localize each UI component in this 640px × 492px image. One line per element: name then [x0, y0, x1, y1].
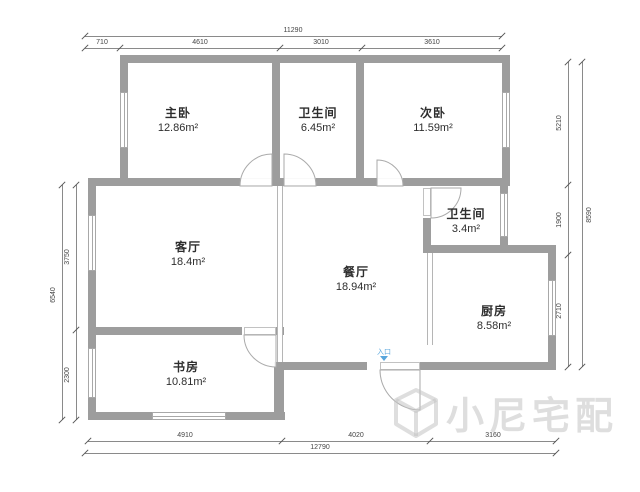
room-area: 10.81m² [166, 376, 206, 388]
dim-top-seg: 4610 [192, 39, 208, 47]
dim-right-total: 8590 [586, 207, 594, 223]
room-name: 厨房 [477, 302, 511, 319]
dim-right-seg: 1900 [556, 212, 564, 228]
room-label-dining-room: 餐厅 18.94m² [336, 263, 376, 293]
room-area: 12.86m² [158, 122, 198, 134]
dimension-line [88, 441, 556, 442]
dimension-line [85, 453, 556, 454]
room-name: 卫生间 [446, 205, 485, 222]
dim-bottom-seg: 4020 [348, 432, 364, 440]
dimension-line [568, 62, 569, 367]
room-label-bathroom-1: 卫生间 6.45m² [298, 104, 337, 134]
room-name: 书房 [166, 358, 206, 375]
room-area: 6.45m² [298, 122, 337, 134]
room-label-bathroom-2: 卫生间 3.4m² [446, 205, 485, 235]
room-area: 18.94m² [336, 281, 376, 293]
room-area: 8.58m² [477, 320, 511, 332]
room-label-second-bedroom: 次卧 11.59m² [413, 104, 453, 134]
room-area: 3.4m² [446, 223, 485, 235]
door-arc-entrance [380, 370, 420, 410]
room-area: 11.59m² [413, 122, 453, 134]
dim-left-seg: 3750 [64, 249, 72, 265]
dim-left-total: 6540 [50, 287, 58, 303]
room-name: 餐厅 [336, 263, 376, 280]
dim-top-total: 11290 [284, 27, 303, 35]
floor-plan: 主卧 12.86m² 卫生间 6.45m² 次卧 11.59m² 客厅 18.4… [0, 0, 640, 492]
dim-left-seg: 2300 [64, 367, 72, 383]
dim-top-seg: 3610 [424, 39, 440, 47]
door-arc-study [244, 335, 276, 367]
door-arc-bathroom-1 [284, 154, 316, 186]
room-name: 卫生间 [298, 104, 337, 121]
door-arcs [0, 0, 640, 492]
dimension-line [85, 36, 502, 37]
room-label-kitchen: 厨房 8.58m² [477, 302, 511, 332]
dim-bottom-seg: 4910 [177, 432, 193, 440]
room-name: 主卧 [158, 104, 198, 121]
room-area: 18.4m² [171, 256, 205, 268]
dim-top-seg: 3010 [313, 39, 329, 47]
entrance-arrow-icon [380, 356, 388, 361]
room-label-study: 书房 10.81m² [166, 358, 206, 388]
dimension-line [62, 185, 63, 420]
door-arc-master-bedroom [240, 154, 272, 186]
dim-right-seg: 5210 [556, 115, 564, 131]
dimension-line [582, 62, 583, 367]
dim-bottom-seg: 3160 [485, 432, 501, 440]
room-label-master-bedroom: 主卧 12.86m² [158, 104, 198, 134]
room-name: 次卧 [413, 104, 453, 121]
room-label-living-room: 客厅 18.4m² [171, 238, 205, 268]
dimension-line [85, 48, 502, 49]
dim-bottom-total: 12790 [310, 444, 329, 452]
door-arc-second-bedroom [377, 160, 403, 186]
dimension-line [76, 185, 77, 420]
room-name: 客厅 [171, 238, 205, 255]
dim-right-seg: 2710 [556, 303, 564, 319]
dim-top-seg: 710 [96, 39, 108, 47]
